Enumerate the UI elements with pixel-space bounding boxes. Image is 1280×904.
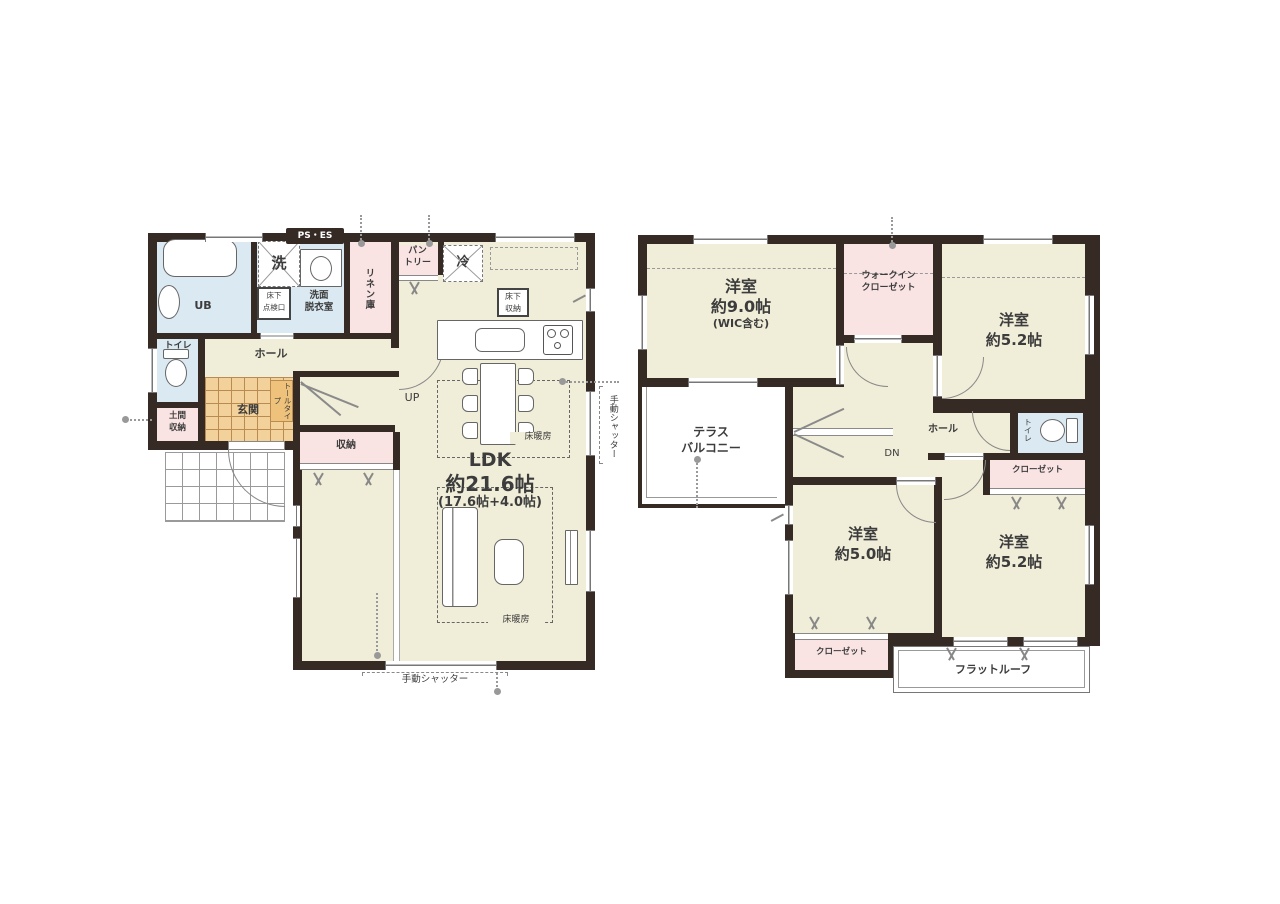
toilet-bowl (165, 359, 187, 387)
roof-mark (943, 648, 959, 661)
vent-window (785, 505, 793, 525)
flat-roof-label: フラットルーフ (928, 663, 1058, 677)
window (1085, 525, 1094, 585)
wic-label: ウォークイン クローゼット (844, 271, 933, 294)
window (693, 235, 768, 244)
hall2-label: ホール (916, 423, 970, 436)
window (293, 538, 300, 598)
shutter-window (385, 661, 497, 670)
closet-right-label: クローゼット (992, 465, 1083, 476)
closet-mark (406, 282, 422, 295)
window (495, 233, 575, 242)
ldk-breakdown-label: (17.6帖+4.0帖) (410, 495, 570, 512)
first-floor-plan: 洗 冷 PS・ES (148, 233, 595, 670)
window (785, 540, 793, 595)
window (688, 378, 758, 387)
doma-storage-label: 土間 収納 (158, 410, 197, 435)
room50-size-label: 約5.0帖 (818, 545, 908, 565)
tv-board (565, 530, 578, 585)
linen-label: リネン庫 (362, 257, 374, 321)
floor-heating-label: 床暖房 (488, 615, 544, 627)
window (1085, 295, 1094, 355)
refrigerator: 冷 (443, 245, 483, 282)
window (1023, 637, 1078, 646)
dining-chair (462, 368, 478, 385)
marker-line (696, 460, 698, 508)
bathtub (163, 239, 237, 277)
vent-arrow (771, 514, 784, 522)
closet-mark (360, 473, 376, 486)
marker-line (891, 217, 893, 245)
door-gap (933, 355, 942, 397)
floor-heating-label: 床暖房 (510, 432, 566, 444)
dining-chair (462, 395, 478, 412)
toilet2-bowl (1040, 419, 1065, 442)
hall-label: ホール (248, 347, 294, 361)
ldk-label: LDK (440, 448, 540, 473)
closet-mark (806, 617, 822, 630)
window (638, 295, 647, 350)
door-gap (944, 453, 984, 460)
wall (293, 377, 300, 450)
entrance-label: 玄関 (218, 403, 278, 417)
wall (148, 402, 205, 408)
roof-mark (1016, 648, 1032, 661)
wall (293, 371, 399, 377)
shutter-bracket (599, 386, 603, 464)
stove-burner (554, 342, 561, 349)
closet-mark (863, 617, 879, 630)
room52a-name-label: 洋室 (968, 311, 1060, 331)
closet-mark (1008, 497, 1024, 510)
window (983, 235, 1053, 244)
wall (344, 242, 350, 333)
sliding-door (260, 333, 294, 339)
storage-shelf (300, 463, 393, 470)
entrance-door-leaf (228, 441, 285, 450)
bath-label: UB (188, 299, 218, 313)
stairs-up-label: UP (398, 391, 426, 405)
terrace-label: テラス バルコニー (653, 425, 769, 456)
marker-line (376, 593, 378, 655)
room52a-size-label: 約5.2帖 (968, 331, 1060, 351)
room52b-size-label: 約5.2帖 (968, 553, 1060, 573)
underfloor-storage-label: 床下 収納 (498, 291, 528, 315)
closet-mark (1053, 497, 1069, 510)
room9-note-label: (WIC含む) (671, 317, 811, 331)
sofa (442, 507, 478, 607)
closet-shelf (795, 633, 888, 640)
room9-name-label: 洋室 (671, 277, 811, 298)
washing-machine: 洗 (258, 241, 300, 287)
dining-chair (518, 395, 534, 412)
washing-machine-label: 洗 (259, 242, 299, 286)
window (953, 637, 1008, 646)
stairs-down-label: DN (878, 447, 906, 460)
manual-shutter-label-bottom: 手動シャッター (370, 674, 500, 686)
room50-name-label: 洋室 (818, 525, 908, 545)
living-table (494, 539, 524, 585)
bath-stool (158, 285, 180, 319)
wall (393, 432, 400, 470)
toilet2-tank (1066, 418, 1078, 443)
inspection-hatch-label: 床下 点検口 (258, 290, 290, 314)
dining-chair (462, 422, 478, 439)
wic-opening (854, 335, 902, 343)
partition-dashed-line (647, 268, 836, 269)
washroom-label: 洗面 脱衣室 (292, 290, 346, 315)
room52b-name-label: 洋室 (968, 533, 1060, 553)
door-gap (896, 477, 936, 485)
wall (198, 339, 205, 441)
tall-cabinet-label: トールタイプ (272, 382, 292, 420)
closet-bottom-label: クローゼット (797, 647, 886, 658)
stove-burner (560, 329, 569, 338)
pantry-label: パン トリー (398, 246, 437, 269)
marker-line (563, 381, 619, 383)
closet-shelf (990, 488, 1085, 495)
marker-line (360, 215, 362, 243)
shutter-window (586, 391, 595, 456)
wall (933, 399, 1094, 413)
stove-burner (547, 329, 556, 338)
door-gap (836, 345, 844, 385)
wall (300, 425, 395, 432)
marker-line (126, 419, 152, 421)
sink-bowl (310, 256, 332, 281)
ps-es-label: PS・ES (286, 228, 344, 244)
refrigerator-label: 冷 (444, 246, 482, 281)
pantry-shelf (397, 275, 438, 281)
toilet2-label: トイレ (1022, 411, 1032, 449)
dining-chair (518, 368, 534, 385)
vent-window (586, 288, 595, 312)
toilet-label: トイレ (158, 341, 198, 353)
marker-line (428, 215, 430, 243)
open-partition (393, 470, 400, 661)
window (586, 530, 595, 592)
stair-landing (793, 428, 893, 436)
cupboard-dashed (490, 247, 578, 270)
partition-dashed-line (942, 277, 1085, 278)
vent-window (293, 505, 300, 527)
storage-label: 収納 (316, 439, 376, 452)
kitchen-sink (475, 328, 525, 352)
closet-mark (310, 473, 326, 486)
window (205, 233, 263, 242)
second-floor-plan: 洋室 約9.0帖 (WIC含む) ウォークイン クローゼット 洋室 約5.2帖 … (638, 235, 1100, 693)
ldk-size-label: 約21.6帖 (420, 471, 560, 497)
window (148, 348, 157, 393)
room9-size-label: 約9.0帖 (671, 297, 811, 318)
manual-shutter-label-right: 手動シャッター (606, 386, 618, 466)
